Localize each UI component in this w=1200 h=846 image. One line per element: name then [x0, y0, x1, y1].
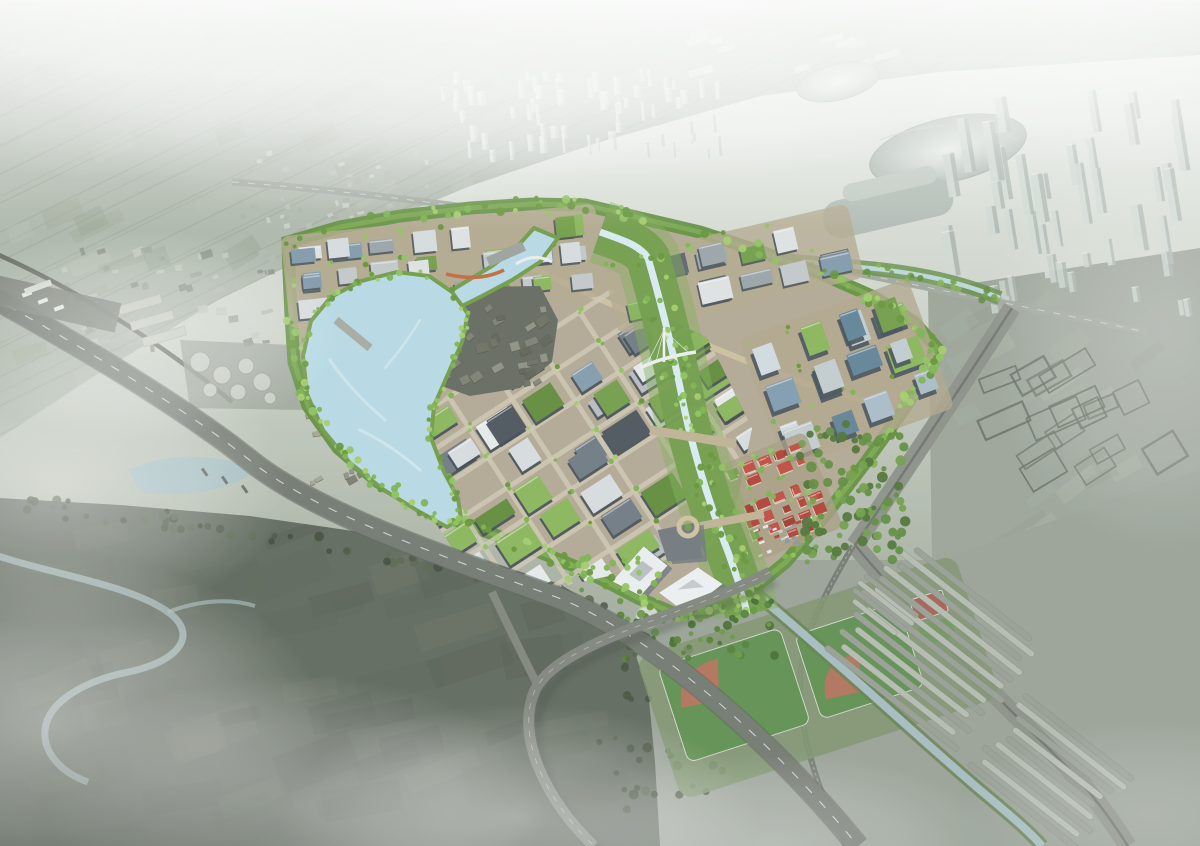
- color-wash: [0, 0, 1200, 846]
- scene-canvas: [0, 0, 1200, 846]
- fog-and-haze: [0, 0, 1200, 846]
- aerial-masterplan-rendering: Hazy aerial bird's-eye rendering of a pl…: [0, 0, 1200, 846]
